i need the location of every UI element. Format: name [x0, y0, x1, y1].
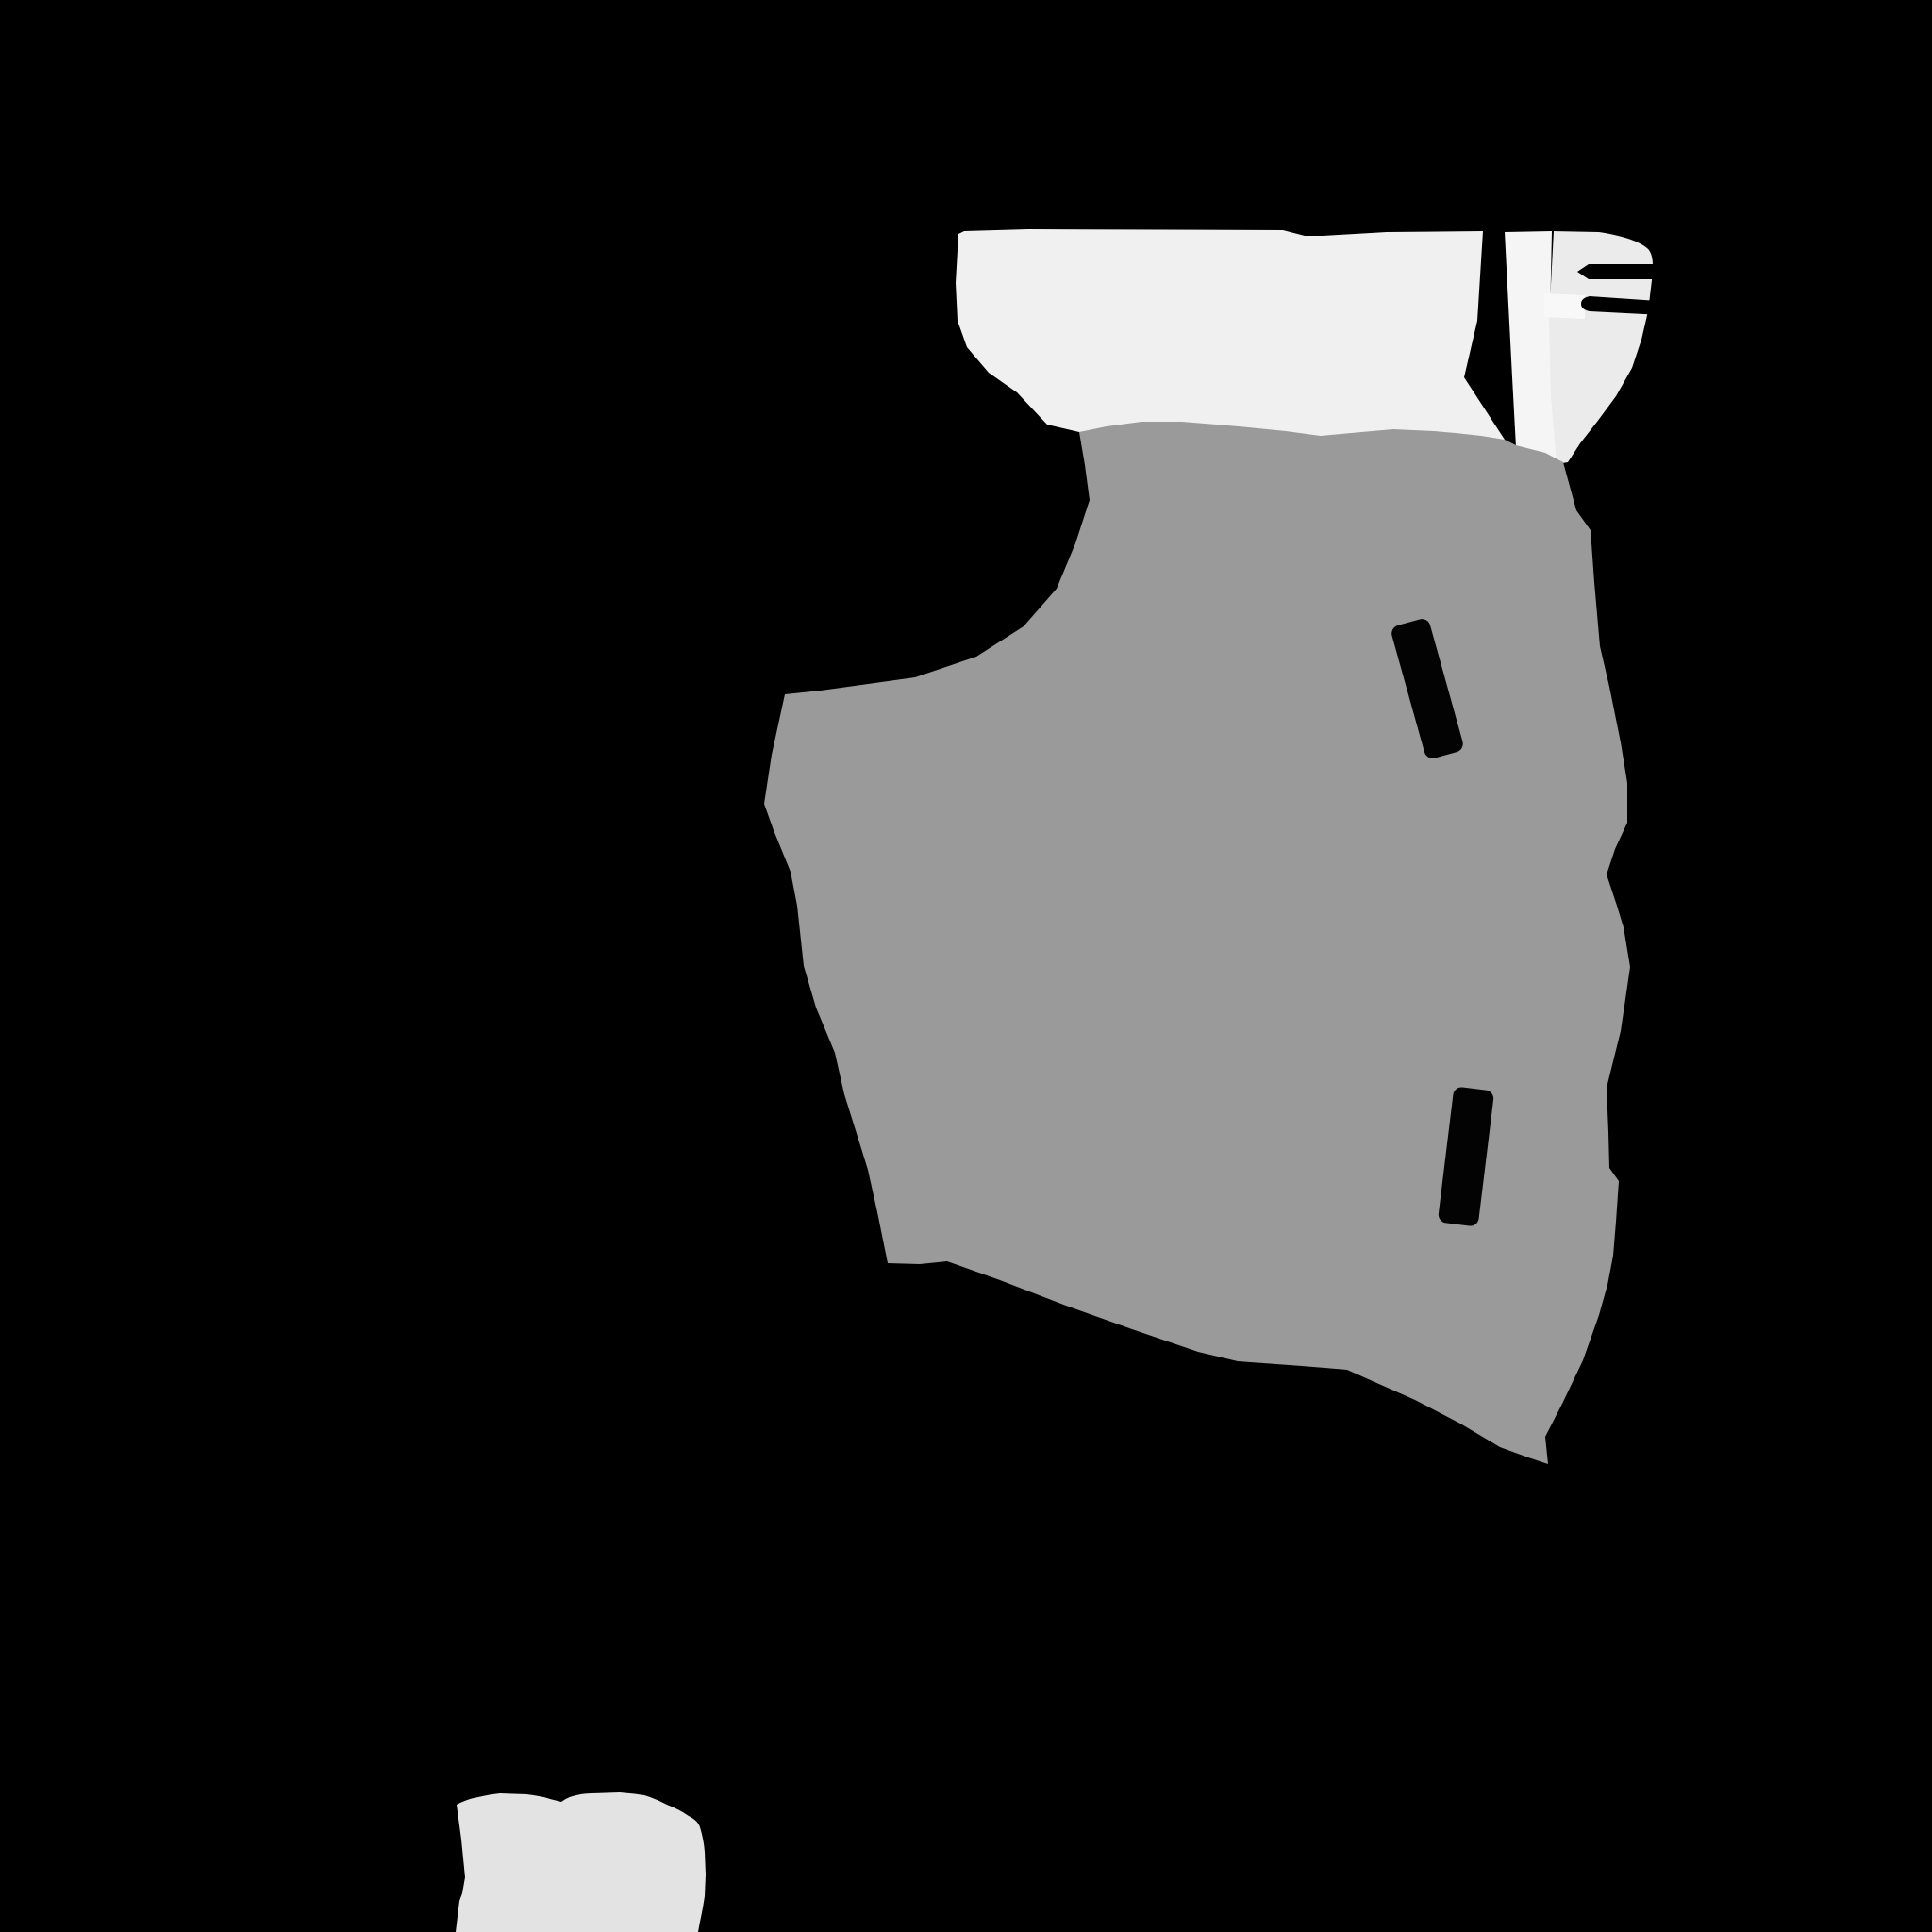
bright-notch-patch: [1544, 293, 1585, 319]
mask-canvas: [0, 0, 1932, 1932]
large-light-band-top: [956, 229, 1505, 441]
dark-slot-top: [1577, 264, 1698, 279]
bottom-left-light-shape: [456, 1792, 706, 1932]
abstract-mask-scene: [0, 0, 1932, 1932]
